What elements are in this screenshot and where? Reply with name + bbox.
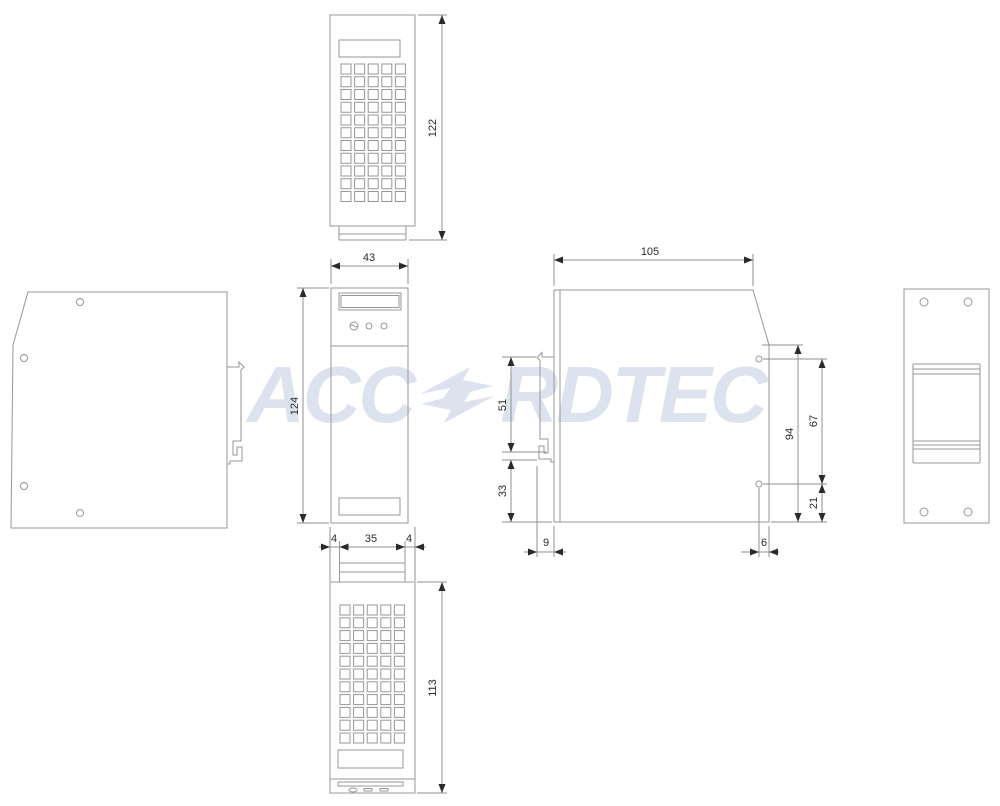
arrowhead bbox=[439, 231, 446, 240]
vent-hole bbox=[381, 618, 391, 628]
vent-hole bbox=[368, 115, 378, 125]
arrowhead bbox=[508, 460, 515, 469]
mounting-hole bbox=[21, 483, 28, 490]
vent-hole bbox=[395, 141, 405, 151]
vent-hole bbox=[382, 166, 392, 176]
vent-hole bbox=[354, 643, 364, 653]
mounting-hole bbox=[756, 481, 762, 487]
vent-hole bbox=[340, 643, 350, 653]
vent-hole bbox=[355, 128, 365, 138]
vent-hole bbox=[367, 682, 377, 692]
vent-hole bbox=[367, 631, 377, 641]
indicator-led bbox=[381, 323, 387, 329]
arrowhead bbox=[795, 513, 802, 522]
mounting-hole bbox=[964, 508, 972, 516]
vent-hole bbox=[355, 115, 365, 125]
vent-hole bbox=[395, 77, 405, 87]
vent-hole bbox=[341, 90, 351, 100]
vent-hole bbox=[382, 115, 392, 125]
vent-hole bbox=[341, 102, 351, 112]
vent-hole bbox=[367, 643, 377, 653]
vent-hole bbox=[381, 631, 391, 641]
vent-hole bbox=[394, 720, 404, 730]
dim-label-4-right: 4 bbox=[406, 533, 412, 545]
vent-hole bbox=[354, 631, 364, 641]
dim-label-6: 6 bbox=[761, 537, 767, 549]
dim-label-94: 94 bbox=[784, 428, 796, 440]
arrowhead bbox=[439, 582, 446, 591]
bottom-view-body bbox=[330, 582, 415, 793]
arrowhead bbox=[819, 513, 826, 522]
vent-hole bbox=[340, 618, 350, 628]
vent-hole bbox=[368, 141, 378, 151]
dim-67: 67 bbox=[763, 359, 827, 484]
vent-hole bbox=[355, 141, 365, 151]
vent-hole bbox=[395, 64, 405, 74]
vent-hole bbox=[381, 605, 391, 615]
dim-label-33: 33 bbox=[497, 485, 509, 497]
front-display-window-inner bbox=[341, 296, 399, 308]
arrowhead bbox=[300, 288, 307, 297]
vent-hole bbox=[341, 179, 351, 189]
vent-hole bbox=[394, 618, 404, 628]
vent-hole bbox=[382, 90, 392, 100]
vent-hole bbox=[341, 64, 351, 74]
arrowhead bbox=[439, 15, 446, 24]
top-view-display-slot bbox=[339, 40, 400, 57]
dim-21: 21 bbox=[808, 484, 826, 522]
dim-label-9: 9 bbox=[543, 537, 549, 549]
vent-hole bbox=[395, 90, 405, 100]
vent-hole bbox=[355, 179, 365, 189]
indicator-led bbox=[366, 323, 372, 329]
arrowhead bbox=[528, 549, 537, 556]
vent-hole bbox=[340, 707, 350, 717]
vent-hole bbox=[368, 179, 378, 189]
arrowhead bbox=[415, 544, 424, 551]
vent-hole bbox=[340, 695, 350, 705]
arrowhead bbox=[750, 549, 759, 556]
vent-hole bbox=[355, 192, 365, 202]
vent-hole bbox=[368, 153, 378, 163]
vent-hole bbox=[368, 102, 378, 112]
bottom-connector-oval bbox=[349, 788, 357, 792]
din-rail-clip bbox=[537, 353, 554, 463]
dim-113: 113 bbox=[417, 582, 447, 793]
vent-hole bbox=[354, 669, 364, 679]
vent-hole bbox=[355, 77, 365, 87]
vent-hole bbox=[340, 656, 350, 666]
vent-hole bbox=[368, 90, 378, 100]
vent-hole bbox=[367, 669, 377, 679]
vent-hole bbox=[367, 695, 377, 705]
vent-hole bbox=[340, 720, 350, 730]
vent-hole bbox=[395, 192, 405, 202]
bottom-view: 113 bbox=[330, 541, 447, 793]
right-side-view: 105 51 33 9 bbox=[497, 246, 827, 557]
vent-hole bbox=[354, 695, 364, 705]
vent-hole bbox=[340, 669, 350, 679]
vent-hole bbox=[381, 643, 391, 653]
vent-hole bbox=[395, 128, 405, 138]
dim-94: 94 bbox=[762, 345, 827, 522]
vent-hole bbox=[340, 682, 350, 692]
dim-label-67: 67 bbox=[808, 415, 820, 427]
vent-hole bbox=[394, 707, 404, 717]
vent-hole bbox=[367, 707, 377, 717]
vent-hole bbox=[355, 166, 365, 176]
bottom-connector-dash bbox=[380, 789, 388, 792]
vent-hole bbox=[382, 64, 392, 74]
vent-hole bbox=[382, 102, 392, 112]
dim-label-43: 43 bbox=[363, 252, 375, 264]
vent-hole bbox=[381, 656, 391, 666]
dim-label-124: 124 bbox=[289, 397, 301, 415]
mounting-hole bbox=[77, 510, 84, 517]
arrowhead bbox=[554, 549, 563, 556]
top-view-vent-grid bbox=[341, 64, 405, 202]
arrowhead bbox=[819, 475, 826, 484]
vent-hole bbox=[381, 682, 391, 692]
top-view-body bbox=[330, 15, 415, 226]
arrowhead bbox=[819, 484, 826, 493]
vent-hole bbox=[394, 695, 404, 705]
vent-hole bbox=[368, 64, 378, 74]
vent-hole bbox=[367, 733, 377, 743]
vent-hole bbox=[354, 682, 364, 692]
arrowhead bbox=[331, 263, 340, 270]
mounting-hole bbox=[964, 298, 972, 306]
vent-hole bbox=[394, 682, 404, 692]
vent-hole bbox=[341, 141, 351, 151]
mounting-hole bbox=[920, 508, 928, 516]
arrowhead bbox=[554, 257, 563, 264]
arrowhead bbox=[508, 443, 515, 452]
arrowhead bbox=[795, 345, 802, 354]
dim-43: 43 bbox=[331, 252, 408, 284]
left-side-view bbox=[11, 292, 244, 528]
vent-hole bbox=[367, 605, 377, 615]
vent-hole bbox=[395, 166, 405, 176]
vent-hole bbox=[381, 733, 391, 743]
front-label-area bbox=[339, 498, 400, 515]
vent-hole bbox=[355, 153, 365, 163]
vent-hole bbox=[341, 166, 351, 176]
vent-hole bbox=[340, 631, 350, 641]
vent-hole bbox=[382, 128, 392, 138]
side-view-body bbox=[554, 290, 769, 522]
bottom-connector-dash bbox=[364, 789, 372, 792]
vent-hole bbox=[394, 669, 404, 679]
arrowhead bbox=[340, 544, 349, 551]
vent-hole bbox=[354, 720, 364, 730]
dim-label-21: 21 bbox=[808, 497, 820, 509]
vent-hole bbox=[381, 707, 391, 717]
arrowhead bbox=[321, 544, 330, 551]
vent-hole bbox=[381, 695, 391, 705]
arrowhead bbox=[439, 784, 446, 793]
vent-hole bbox=[367, 618, 377, 628]
mounting-hole bbox=[920, 298, 928, 306]
din-rail-clip bbox=[227, 362, 244, 464]
vent-hole bbox=[394, 643, 404, 653]
vent-hole bbox=[354, 733, 364, 743]
vent-hole bbox=[382, 192, 392, 202]
vent-hole bbox=[367, 720, 377, 730]
dim-label-105: 105 bbox=[641, 246, 659, 258]
mounting-hole bbox=[77, 299, 84, 306]
dim-105: 105 bbox=[554, 246, 753, 286]
vent-hole bbox=[395, 115, 405, 125]
dim-51: 51 bbox=[497, 357, 546, 452]
vent-hole bbox=[368, 128, 378, 138]
vent-hole bbox=[368, 166, 378, 176]
vent-hole bbox=[355, 102, 365, 112]
vent-hole bbox=[382, 153, 392, 163]
left-view-body bbox=[11, 292, 227, 528]
vent-hole bbox=[394, 656, 404, 666]
dim-124: 124 bbox=[289, 288, 329, 523]
vent-hole bbox=[394, 605, 404, 615]
vent-hole bbox=[354, 656, 364, 666]
vent-hole bbox=[395, 102, 405, 112]
arrowhead bbox=[508, 513, 515, 522]
technical-drawing-canvas: 122 43 bbox=[0, 0, 1000, 806]
vent-hole bbox=[355, 90, 365, 100]
vent-hole bbox=[354, 605, 364, 615]
vent-hole bbox=[368, 77, 378, 87]
vent-hole bbox=[368, 192, 378, 202]
vent-hole bbox=[367, 656, 377, 666]
bottom-view-vent-grid bbox=[340, 605, 404, 743]
dim-label-122: 122 bbox=[427, 119, 439, 137]
arrowhead bbox=[744, 257, 753, 264]
front-view: 43 124 4 35 4 bbox=[289, 252, 426, 581]
vent-hole bbox=[382, 141, 392, 151]
vent-hole bbox=[354, 618, 364, 628]
vent-hole bbox=[395, 153, 405, 163]
vent-hole bbox=[340, 733, 350, 743]
mounting-hole bbox=[756, 356, 762, 362]
vent-hole bbox=[341, 128, 351, 138]
back-view-body bbox=[904, 289, 989, 523]
vent-hole bbox=[382, 179, 392, 189]
dim-label-35: 35 bbox=[365, 533, 377, 545]
dim-label-51: 51 bbox=[497, 399, 509, 411]
top-view: 122 bbox=[330, 15, 447, 240]
arrowhead bbox=[769, 549, 778, 556]
mounting-hole bbox=[21, 355, 28, 362]
arrowhead bbox=[819, 359, 826, 368]
vent-hole bbox=[341, 153, 351, 163]
arrowhead bbox=[399, 263, 408, 270]
back-view bbox=[904, 289, 989, 523]
vent-hole bbox=[354, 707, 364, 717]
vent-hole bbox=[394, 733, 404, 743]
vent-hole bbox=[394, 631, 404, 641]
arrowhead bbox=[396, 544, 405, 551]
vent-hole bbox=[381, 720, 391, 730]
vent-hole bbox=[381, 669, 391, 679]
vent-hole bbox=[341, 192, 351, 202]
vent-hole bbox=[341, 77, 351, 87]
potentiometer-slot bbox=[351, 325, 357, 327]
vent-hole bbox=[341, 115, 351, 125]
arrowhead bbox=[300, 514, 307, 523]
vent-hole bbox=[355, 64, 365, 74]
bottom-label-area bbox=[338, 750, 403, 768]
vent-hole bbox=[340, 605, 350, 615]
dim-33: 33 bbox=[497, 460, 552, 522]
dim-label-113: 113 bbox=[427, 679, 439, 697]
bottom-strip-slot bbox=[338, 782, 403, 786]
arrowhead bbox=[508, 357, 515, 366]
dim-foot-4-35-4: 4 35 4 bbox=[319, 527, 426, 581]
vent-hole bbox=[382, 77, 392, 87]
dim-label-4-left: 4 bbox=[331, 533, 337, 545]
vent-hole bbox=[395, 179, 405, 189]
